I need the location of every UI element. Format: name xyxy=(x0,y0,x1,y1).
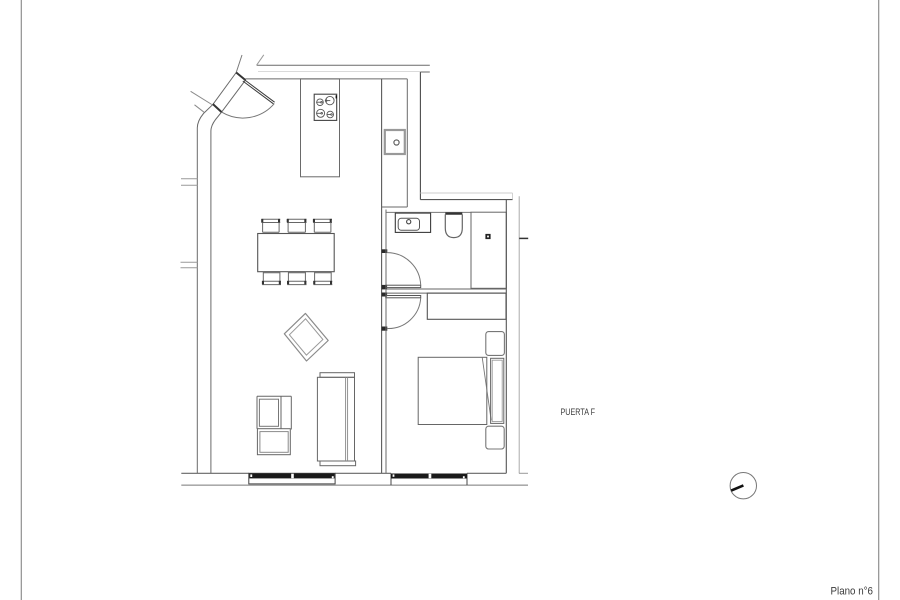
svg-text:Plano n°6: Plano n°6 xyxy=(831,586,874,598)
svg-text:PUERTA F: PUERTA F xyxy=(561,407,596,418)
